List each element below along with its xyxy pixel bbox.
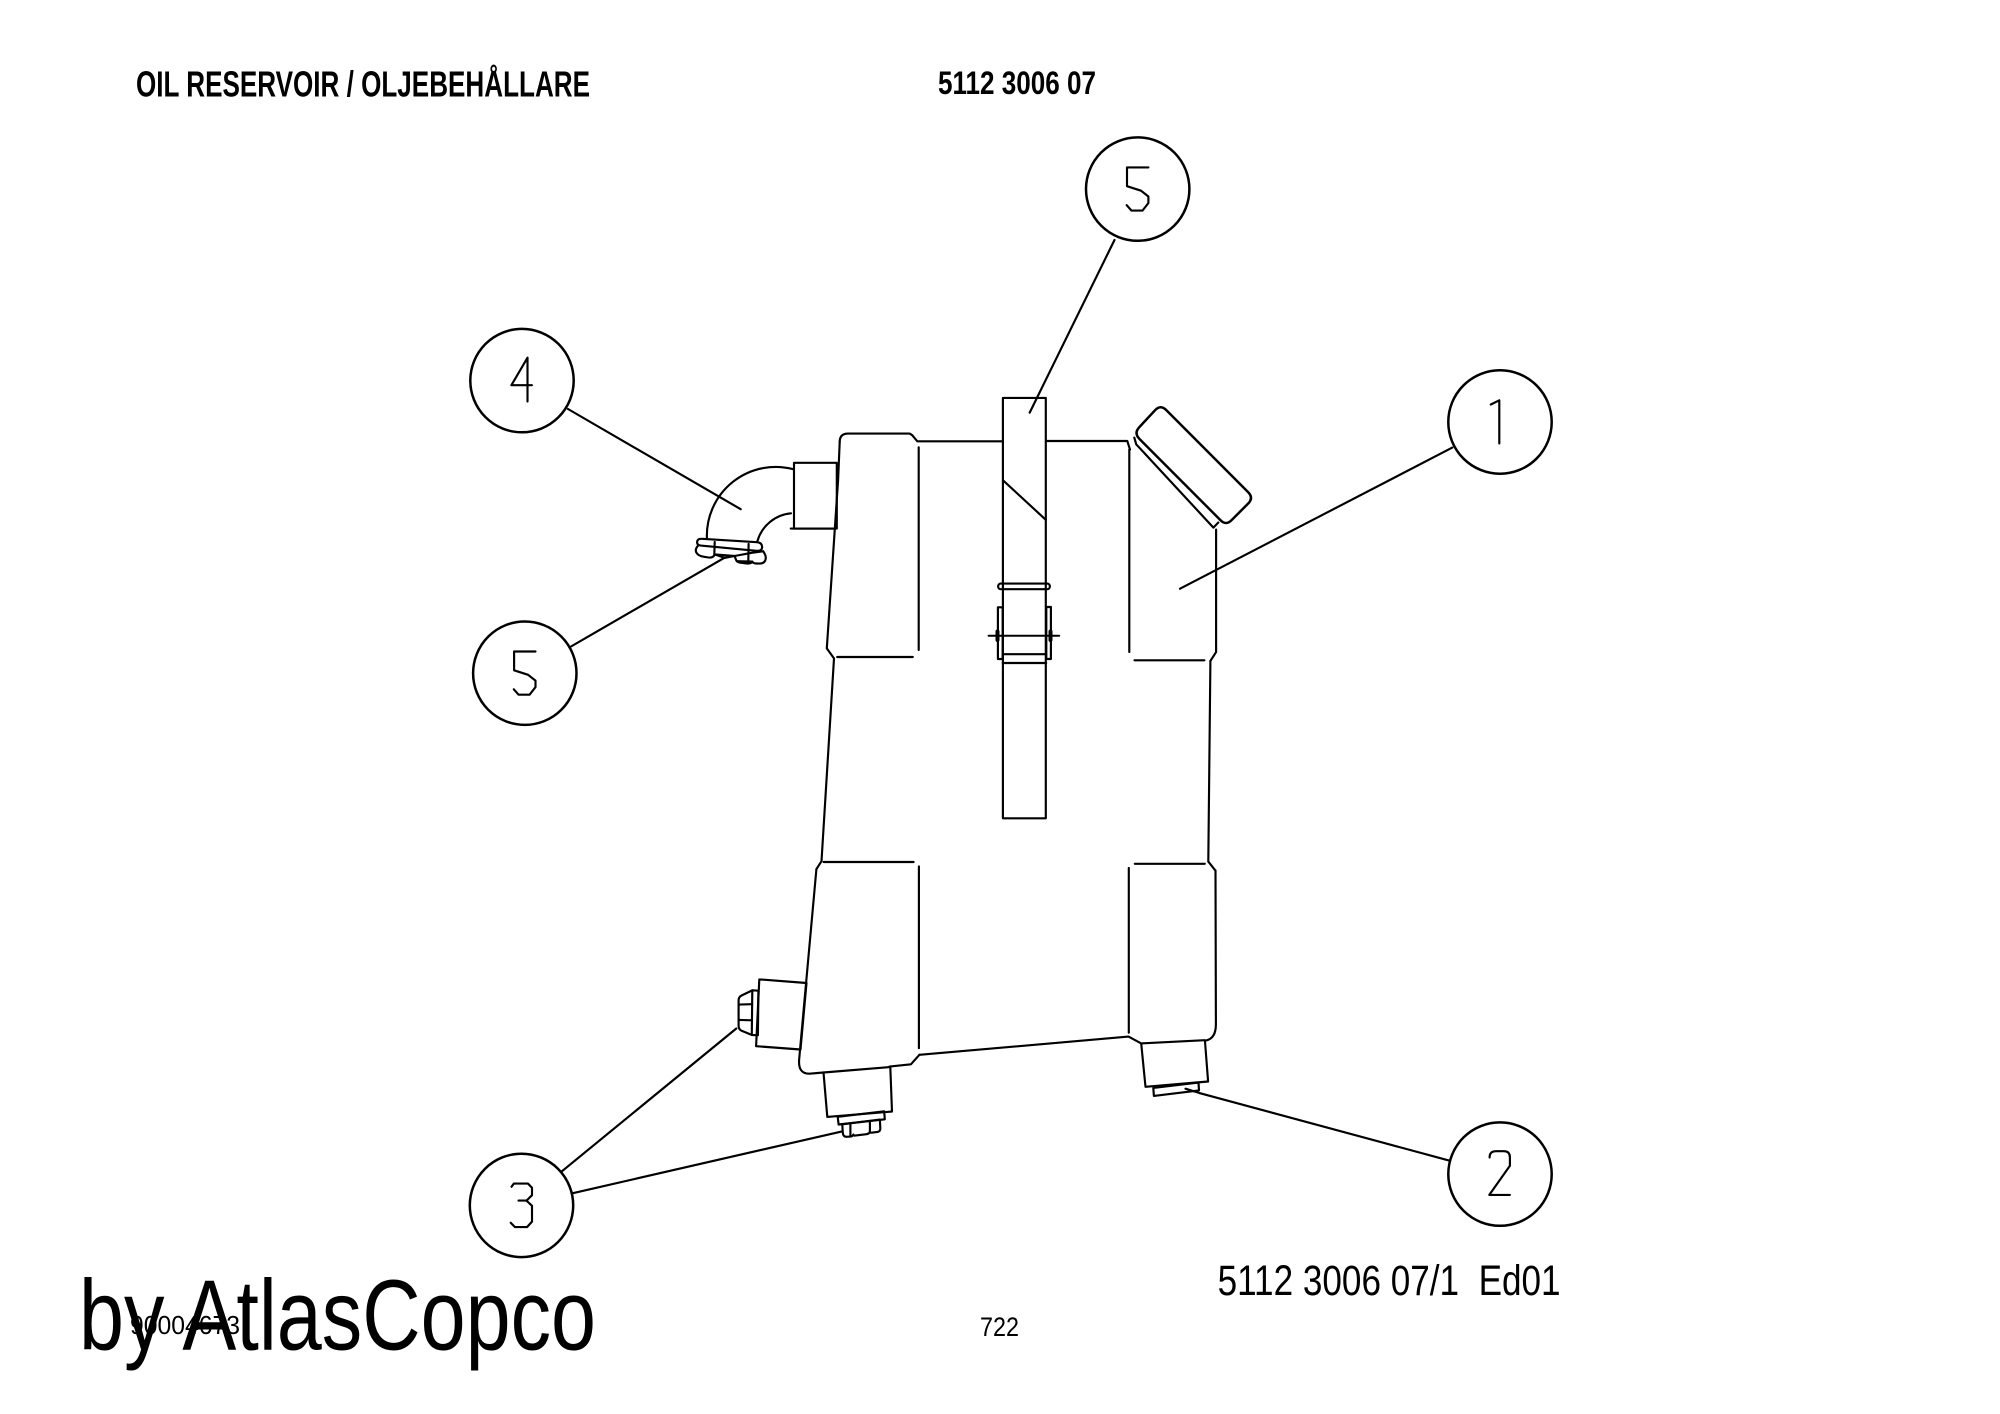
svg-text:5112 3006 07/1 Ed01: 5112 3006 07/1 Ed01 <box>1218 1257 1561 1305</box>
svg-text:5112 3006 07: 5112 3006 07 <box>938 65 1096 101</box>
svg-text:by AtlasCopco: by AtlasCopco <box>79 1260 596 1372</box>
svg-text:OIL RESERVOIR / OLJEBEHÅLLARE: OIL RESERVOIR / OLJEBEHÅLLARE <box>136 64 590 105</box>
svg-text:722: 722 <box>980 1312 1019 1342</box>
